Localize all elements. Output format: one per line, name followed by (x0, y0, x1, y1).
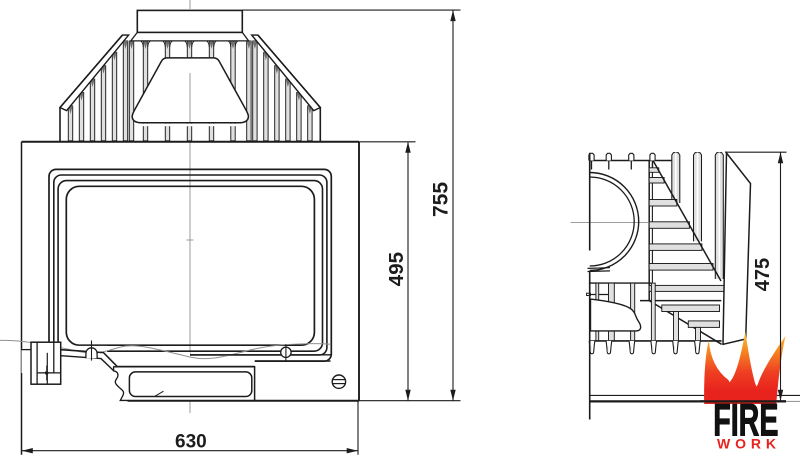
svg-text:630: 630 (175, 432, 207, 453)
svg-text:495: 495 (385, 252, 408, 286)
svg-text:755: 755 (430, 182, 453, 217)
svg-text:475: 475 (752, 258, 774, 291)
svg-text:WORK: WORK (717, 435, 781, 451)
